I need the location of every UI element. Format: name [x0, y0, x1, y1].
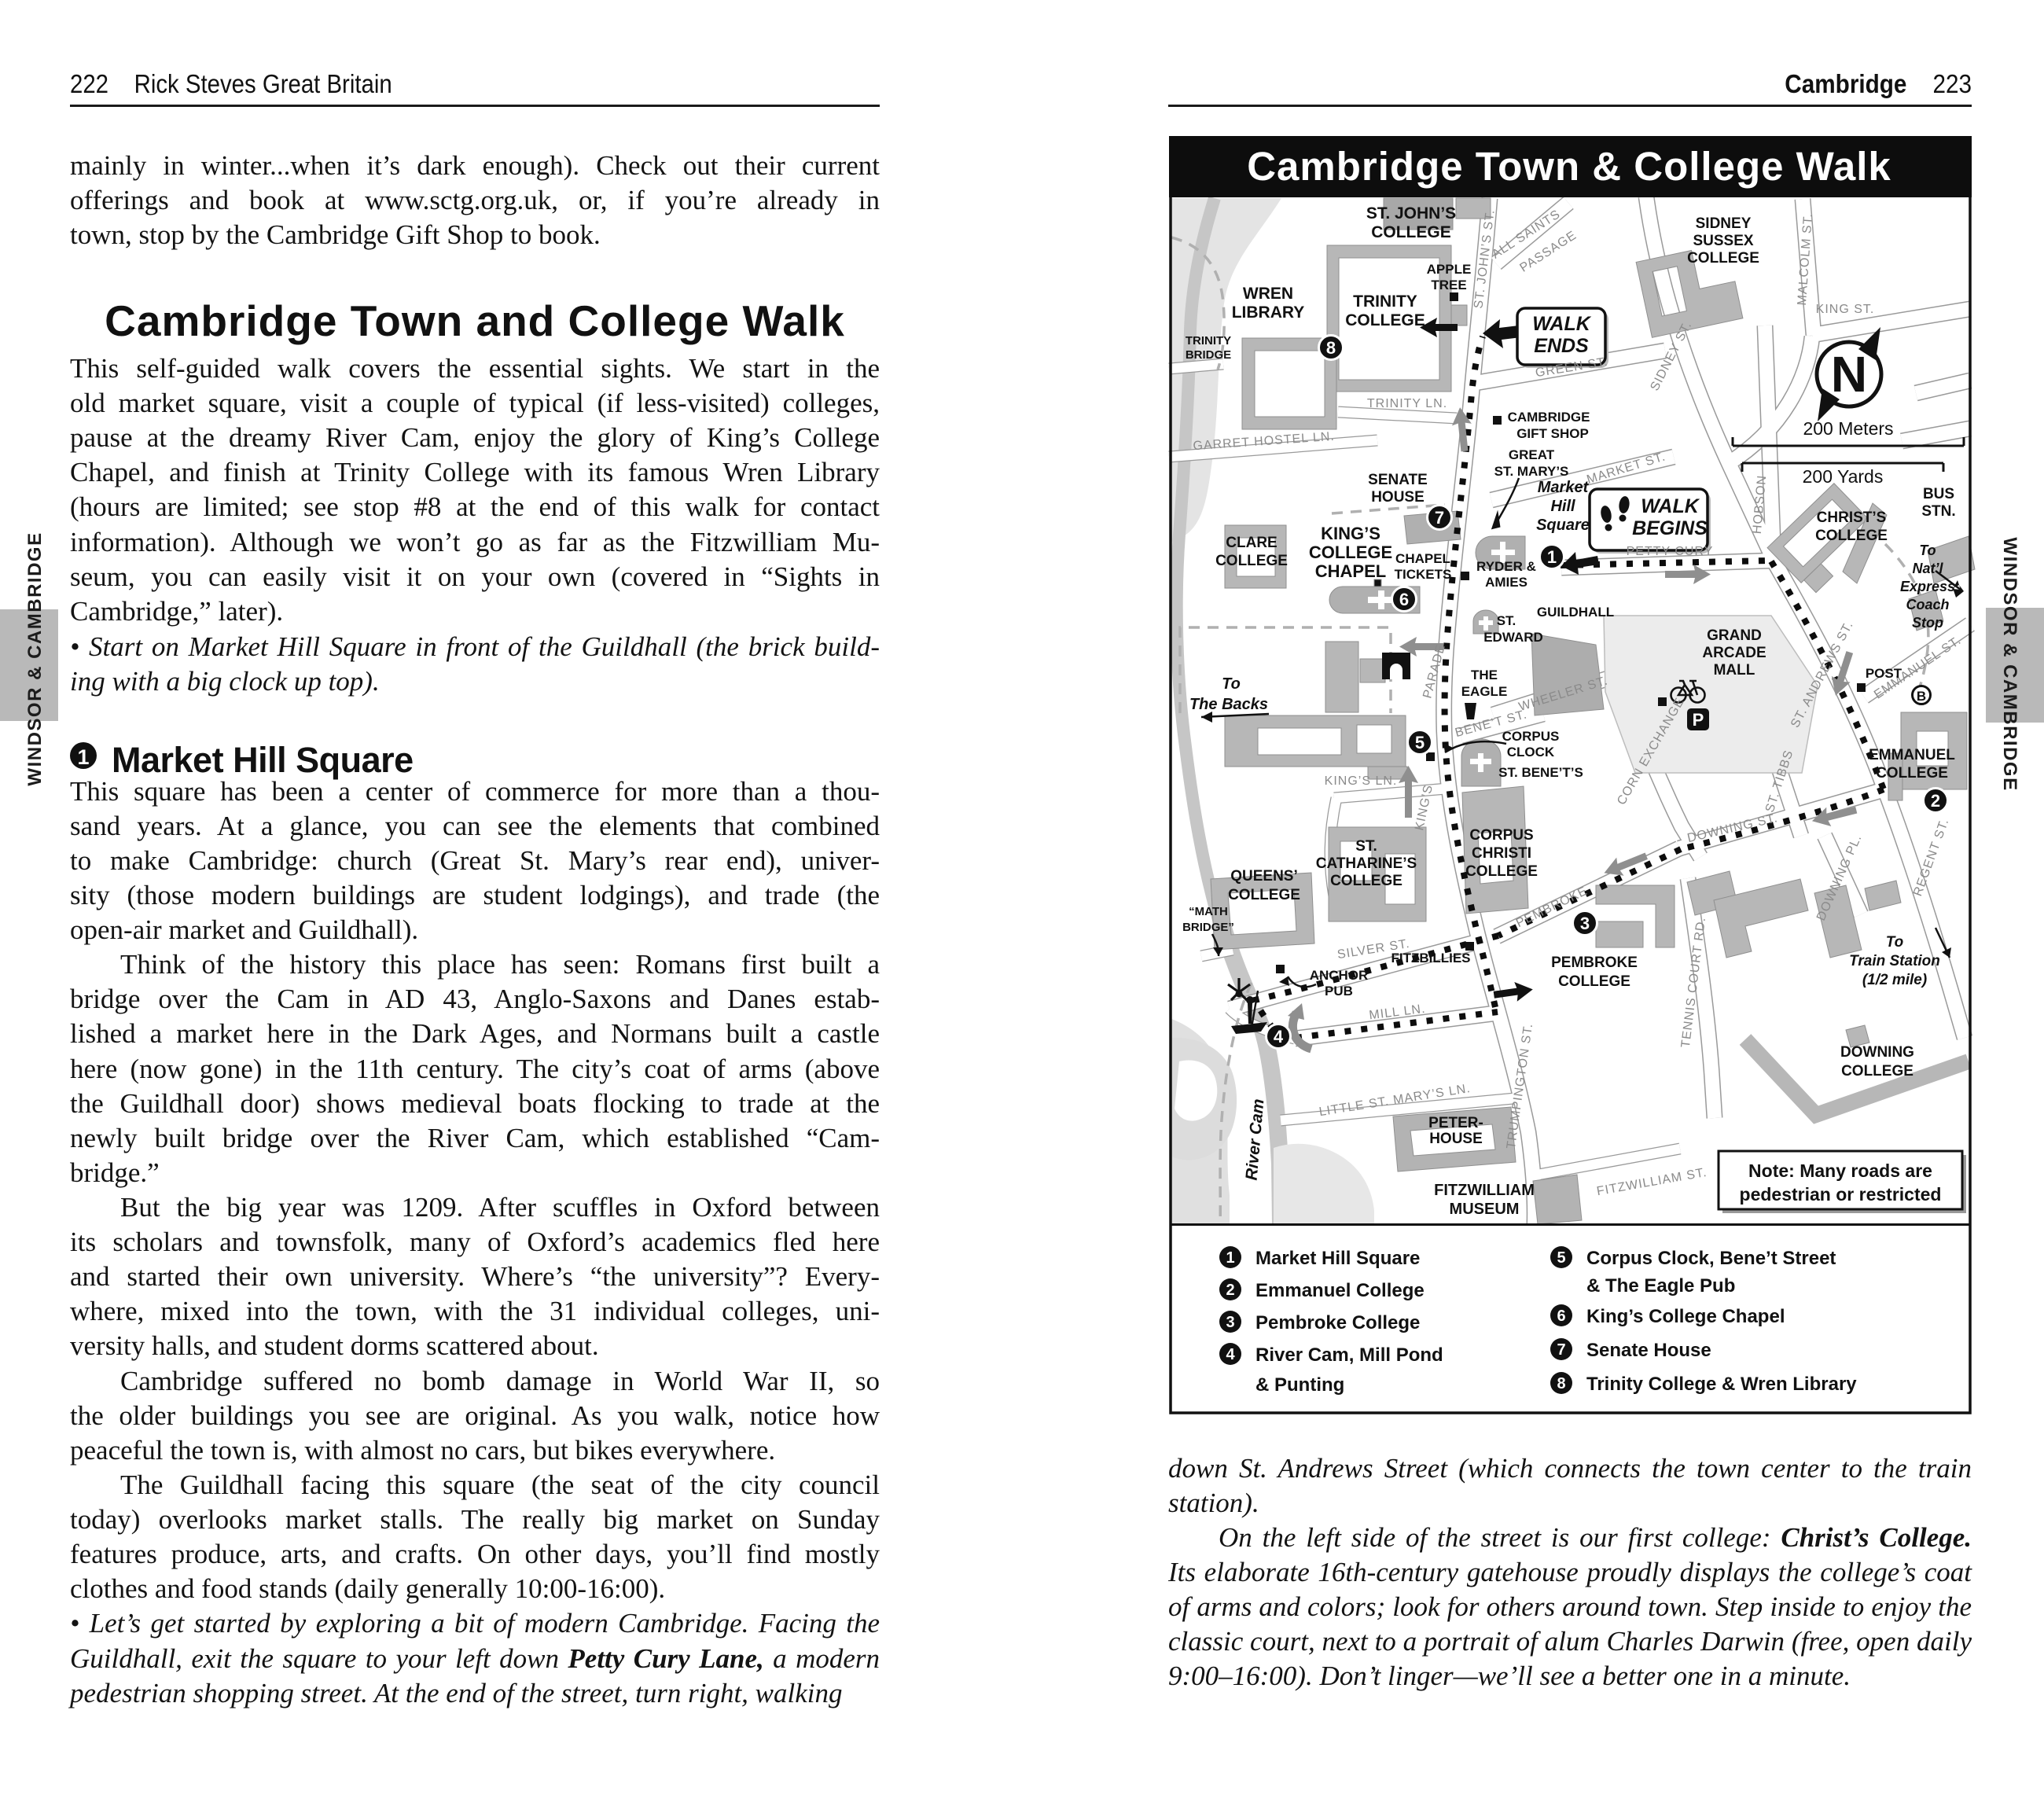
- svg-text:GREAT: GREAT: [1509, 447, 1555, 462]
- svg-text:COLLEGE: COLLEGE: [1815, 528, 1888, 544]
- svg-text:KING ST.: KING ST.: [1816, 303, 1875, 316]
- svg-text:EDWARD: EDWARD: [1483, 630, 1543, 645]
- svg-text:pedestrian or restricted: pedestrian or restricted: [1740, 1184, 1942, 1205]
- svg-text:Cambridge Town & College Walk: Cambridge Town & College Walk: [1247, 144, 1891, 189]
- svg-text:Corpus Clock, Bene’t Street: Corpus Clock, Bene’t Street: [1586, 1248, 1836, 1269]
- svg-text:To: To: [1222, 675, 1241, 693]
- svg-text:Market: Market: [1538, 479, 1590, 496]
- svg-text:1: 1: [1547, 547, 1557, 567]
- svg-text:5: 5: [1415, 733, 1425, 752]
- svg-text:ENDS: ENDS: [1534, 335, 1589, 357]
- svg-text:CHRIST’S: CHRIST’S: [1817, 509, 1887, 526]
- svg-text:ANCHOR: ANCHOR: [1310, 968, 1369, 983]
- svg-text:BEGINS: BEGINS: [1632, 517, 1708, 539]
- svg-text:MALL: MALL: [1714, 662, 1755, 679]
- svg-text:N: N: [1831, 346, 1867, 403]
- svg-text:TICKETS: TICKETS: [1395, 567, 1452, 582]
- svg-text:4: 4: [1226, 1346, 1235, 1363]
- svg-text:CHRISTI: CHRISTI: [1472, 845, 1531, 862]
- svg-text:7: 7: [1557, 1341, 1565, 1359]
- svg-text:LIBRARY: LIBRARY: [1232, 303, 1305, 322]
- svg-text:7: 7: [1435, 508, 1444, 528]
- svg-text:MUSEUM: MUSEUM: [1450, 1201, 1520, 1218]
- svg-text:PUB: PUB: [1325, 984, 1353, 999]
- svg-text:APPLE: APPLE: [1427, 262, 1472, 277]
- svg-text:SENATE: SENATE: [1368, 472, 1428, 488]
- svg-text:COLLEGE: COLLEGE: [1309, 543, 1392, 562]
- svg-text:& Punting: & Punting: [1255, 1374, 1344, 1396]
- svg-text:ST.: ST.: [1355, 838, 1377, 855]
- svg-text:Hill: Hill: [1550, 498, 1575, 515]
- svg-text:River Cam, Mill Pond: River Cam, Mill Pond: [1255, 1344, 1443, 1366]
- svg-text:To: To: [1886, 934, 1904, 951]
- svg-text:2: 2: [1931, 791, 1940, 811]
- svg-text:CLARE: CLARE: [1226, 535, 1277, 551]
- svg-text:PETER-: PETER-: [1428, 1115, 1483, 1131]
- svg-text:SIDNEY: SIDNEY: [1696, 215, 1752, 232]
- svg-text:COLLEGE: COLLEGE: [1558, 973, 1630, 990]
- svg-text:To: To: [1919, 543, 1936, 558]
- svg-text:POST: POST: [1866, 666, 1902, 681]
- svg-text:THE: THE: [1471, 668, 1498, 682]
- svg-text:EAGLE: EAGLE: [1461, 684, 1508, 699]
- svg-text:5: 5: [1557, 1249, 1565, 1267]
- svg-text:The Backs: The Backs: [1189, 696, 1268, 713]
- svg-text:BRIDGE”: BRIDGE”: [1182, 921, 1234, 934]
- svg-text:4: 4: [1274, 1027, 1284, 1046]
- svg-text:COLLEGE: COLLEGE: [1465, 863, 1538, 880]
- svg-text:200 Meters: 200 Meters: [1803, 418, 1893, 439]
- svg-text:HOUSE: HOUSE: [1371, 489, 1425, 506]
- svg-text:CAMBRIDGE: CAMBRIDGE: [1508, 410, 1590, 425]
- svg-text:COLLEGE: COLLEGE: [1330, 873, 1402, 889]
- svg-text:CLOCK: CLOCK: [1507, 745, 1555, 760]
- svg-text:COLLEGE: COLLEGE: [1215, 553, 1288, 569]
- svg-text:TRINITY: TRINITY: [1186, 334, 1231, 348]
- svg-text:QUEENS’: QUEENS’: [1230, 868, 1298, 885]
- svg-text:6: 6: [1557, 1308, 1565, 1325]
- svg-text:HOUSE: HOUSE: [1429, 1131, 1483, 1147]
- svg-text:KING’S LN.: KING’S LN.: [1325, 774, 1398, 788]
- svg-text:CATHARINE’S: CATHARINE’S: [1316, 855, 1417, 872]
- svg-text:STN.: STN.: [1921, 503, 1955, 520]
- svg-text:COLLEGE: COLLEGE: [1876, 765, 1948, 782]
- svg-text:3: 3: [1580, 914, 1590, 933]
- svg-text:AMIES: AMIES: [1485, 575, 1527, 590]
- svg-text:EMMANUEL: EMMANUEL: [1869, 747, 1955, 763]
- svg-text:Stop: Stop: [1912, 615, 1943, 631]
- svg-text:8: 8: [1326, 338, 1336, 358]
- svg-text:CORPUS: CORPUS: [1469, 827, 1533, 844]
- svg-text:ARCADE: ARCADE: [1702, 645, 1766, 661]
- svg-text:DOWNING: DOWNING: [1840, 1044, 1914, 1061]
- svg-text:COLLEGE: COLLEGE: [1841, 1063, 1913, 1080]
- svg-text:& The Eagle Pub: & The Eagle Pub: [1586, 1275, 1735, 1297]
- svg-text:ST. JOHN’S: ST. JOHN’S: [1366, 204, 1456, 223]
- svg-text:COLLEGE: COLLEGE: [1687, 250, 1759, 267]
- svg-text:6: 6: [1399, 590, 1409, 609]
- svg-text:3: 3: [1226, 1314, 1234, 1331]
- svg-text:GRAND: GRAND: [1707, 627, 1762, 644]
- svg-text:WALK: WALK: [1532, 313, 1592, 335]
- svg-text:PETTY CURY: PETTY CURY: [1627, 545, 1714, 558]
- svg-text:Trinity College & Wren Library: Trinity College & Wren Library: [1586, 1374, 1857, 1395]
- svg-text:Market Hill Square: Market Hill Square: [1255, 1248, 1420, 1269]
- svg-text:1: 1: [1226, 1249, 1234, 1267]
- svg-text:BUS: BUS: [1923, 486, 1954, 502]
- svg-text:CHAPEL: CHAPEL: [1395, 551, 1450, 566]
- svg-text:Note: Many roads are: Note: Many roads are: [1748, 1160, 1932, 1181]
- svg-text:BRIDGE: BRIDGE: [1186, 348, 1231, 362]
- svg-text:FITZBILLIES: FITZBILLIES: [1391, 951, 1470, 966]
- svg-text:ST. MARY’S: ST. MARY’S: [1494, 464, 1569, 479]
- svg-text:CHAPEL: CHAPEL: [1315, 561, 1386, 581]
- svg-text:2: 2: [1226, 1282, 1234, 1299]
- svg-text:ST. BENE’T’S: ST. BENE’T’S: [1498, 765, 1583, 780]
- svg-text:COLLEGE: COLLEGE: [1371, 223, 1451, 241]
- svg-text:WREN: WREN: [1243, 285, 1293, 303]
- svg-text:200 Yards: 200 Yards: [1803, 466, 1884, 487]
- svg-text:Coach: Coach: [1906, 597, 1949, 612]
- svg-text:WALK: WALK: [1641, 495, 1700, 517]
- svg-text:P: P: [1693, 710, 1704, 730]
- svg-text:GUILDHALL: GUILDHALL: [1537, 605, 1614, 620]
- svg-text:RYDER &: RYDER &: [1476, 559, 1536, 574]
- svg-text:Square: Square: [1536, 517, 1590, 534]
- svg-text:(1/2 mile): (1/2 mile): [1862, 972, 1927, 988]
- svg-text:CORPUS: CORPUS: [1502, 729, 1560, 744]
- svg-text:8: 8: [1557, 1375, 1565, 1392]
- svg-text:Pembroke College: Pembroke College: [1255, 1312, 1420, 1333]
- svg-text:PEMBROKE: PEMBROKE: [1551, 954, 1638, 971]
- svg-text:ST.: ST.: [1497, 613, 1516, 628]
- svg-text:Emmanuel College: Emmanuel College: [1255, 1280, 1425, 1301]
- svg-text:SUSSEX: SUSSEX: [1693, 233, 1753, 249]
- svg-text:COLLEGE: COLLEGE: [1345, 311, 1425, 329]
- svg-text:COLLEGE: COLLEGE: [1228, 887, 1300, 903]
- svg-text:Nat’l: Nat’l: [1912, 561, 1943, 576]
- svg-text:TREE: TREE: [1431, 278, 1466, 292]
- svg-text:Train Station: Train Station: [1849, 953, 1940, 969]
- svg-text:KING’S: KING’S: [1321, 524, 1380, 543]
- svg-text:King’s College Chapel: King’s College Chapel: [1586, 1306, 1785, 1327]
- svg-text:Senate House: Senate House: [1586, 1340, 1711, 1361]
- svg-text:TRINITY LN.: TRINITY LN.: [1367, 397, 1447, 410]
- svg-text:GIFT SHOP: GIFT SHOP: [1516, 426, 1589, 441]
- svg-text:Express: Express: [1900, 579, 1955, 594]
- svg-text:“MATH: “MATH: [1189, 905, 1228, 918]
- svg-text:B: B: [1917, 689, 1926, 704]
- svg-text:TRINITY: TRINITY: [1353, 292, 1417, 311]
- svg-text:FITZWILLIAM: FITZWILLIAM: [1434, 1182, 1535, 1199]
